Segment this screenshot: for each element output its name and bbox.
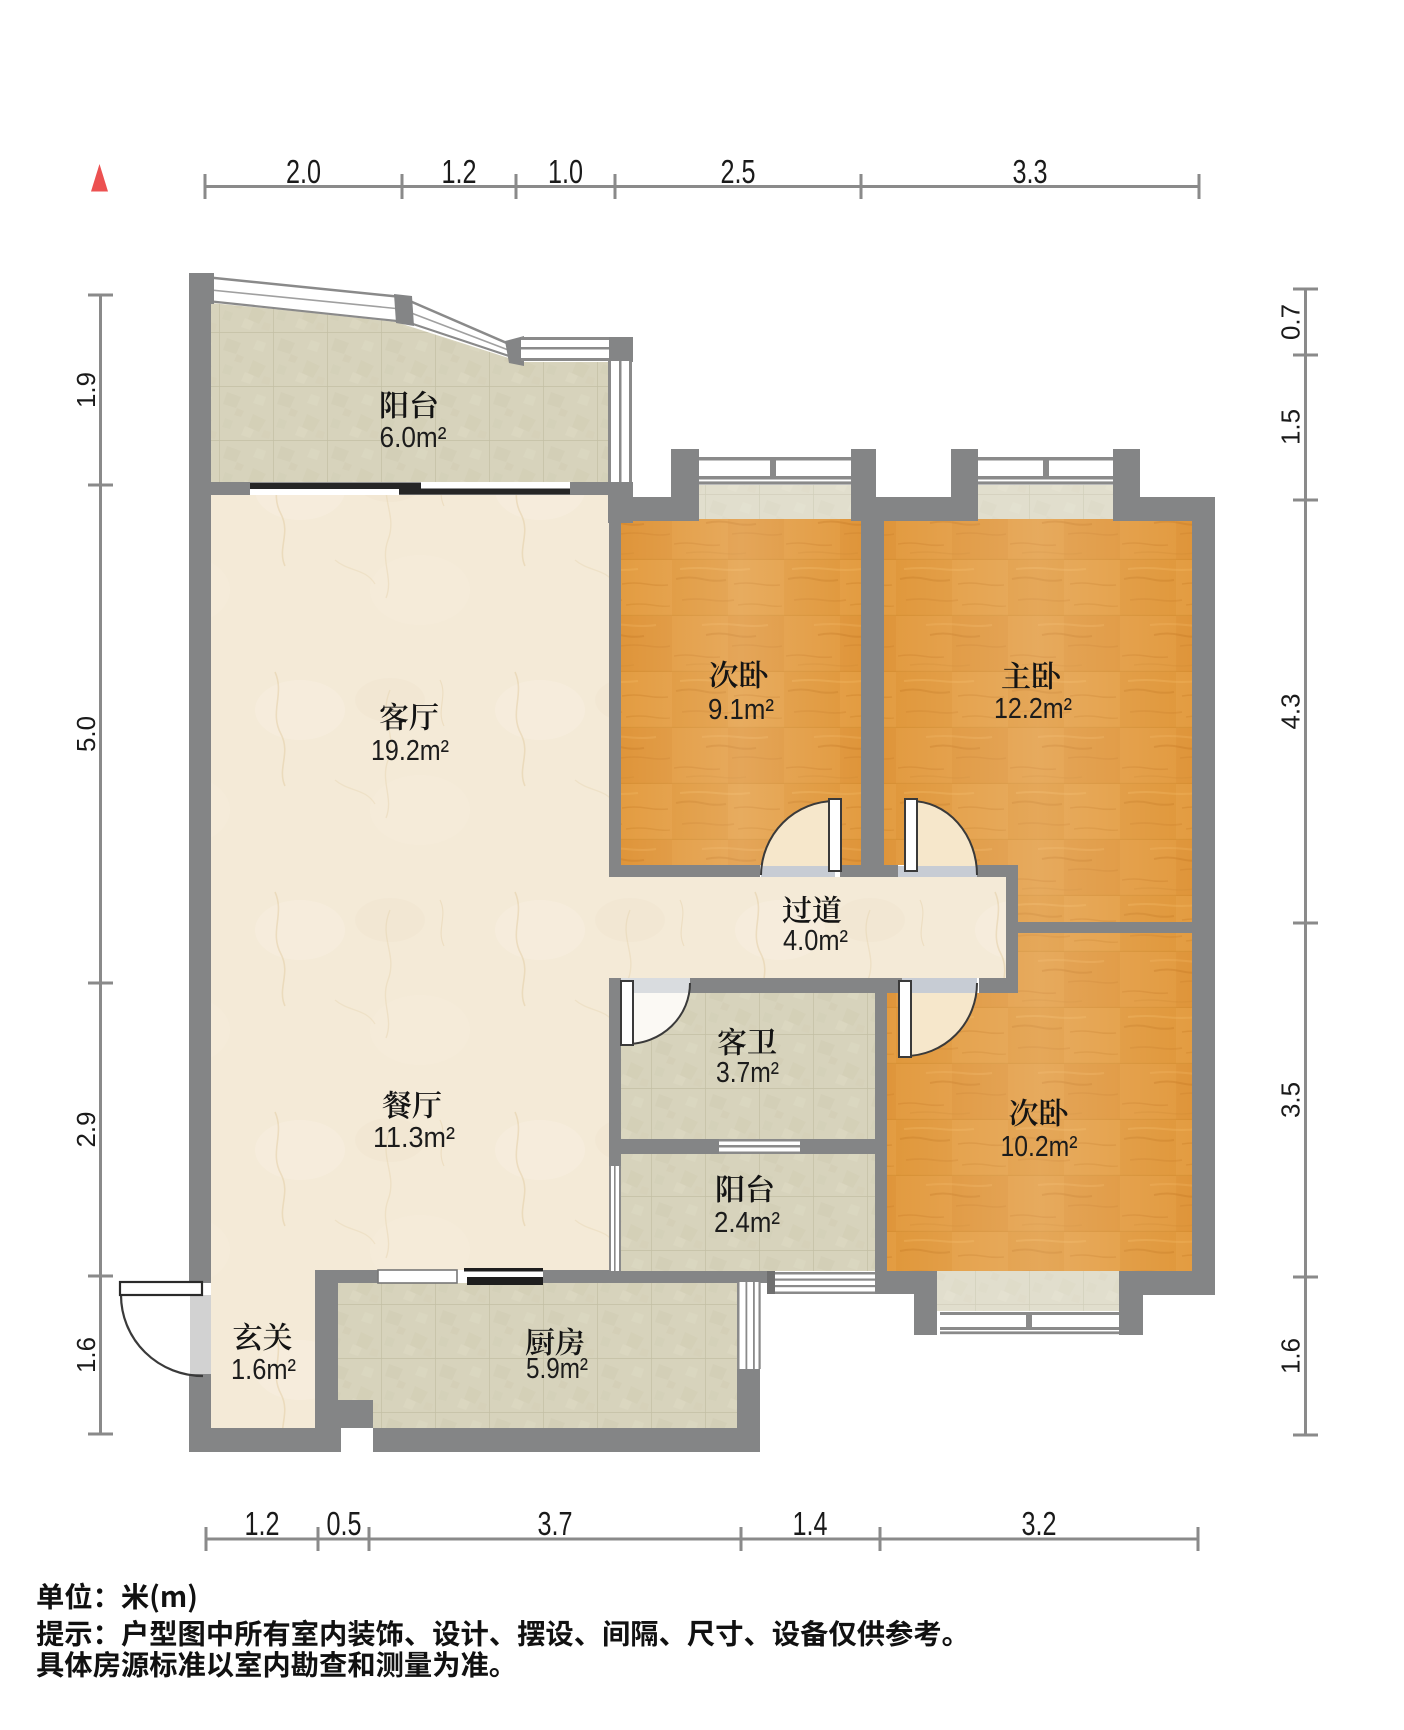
svg-text:1.6: 1.6 [1278,1338,1306,1374]
svg-text:2.5: 2.5 [721,153,756,190]
svg-text:2.9: 2.9 [73,1112,101,1148]
svg-text:3.3: 3.3 [1013,153,1048,190]
svg-text:3.7m²: 3.7m² [716,1057,779,1089]
svg-text:1.4: 1.4 [793,1505,828,1542]
svg-text:2.4m²: 2.4m² [714,1207,780,1239]
svg-text:3.2: 3.2 [1022,1505,1057,1542]
svg-text:6.0m²: 6.0m² [380,422,447,454]
svg-text:5.9m²: 5.9m² [526,1353,588,1385]
svg-text:0.5: 0.5 [327,1505,362,1542]
svg-text:9.1m²: 9.1m² [708,694,774,726]
svg-text:4.3: 4.3 [1278,694,1306,730]
svg-text:0.7: 0.7 [1278,304,1306,340]
svg-text:10.2m²: 10.2m² [1001,1131,1078,1163]
svg-text:1.9: 1.9 [73,372,101,408]
svg-text:12.2m²: 12.2m² [994,693,1072,725]
svg-text:1.6: 1.6 [73,1337,101,1373]
svg-text:3.7: 3.7 [538,1505,573,1542]
svg-text:1.2: 1.2 [245,1505,280,1542]
svg-text:1.2: 1.2 [442,153,477,190]
svg-text:3.5: 3.5 [1278,1082,1306,1118]
svg-text:5.0: 5.0 [73,716,101,752]
svg-text:2.0: 2.0 [286,153,321,190]
svg-text:11.3m²: 11.3m² [373,1122,455,1154]
svg-text:1.0: 1.0 [548,153,583,190]
svg-text:19.2m²: 19.2m² [371,735,449,767]
svg-text:1.5: 1.5 [1278,409,1306,445]
svg-text:4.0m²: 4.0m² [783,925,848,957]
svg-text:1.6m²: 1.6m² [231,1354,296,1386]
